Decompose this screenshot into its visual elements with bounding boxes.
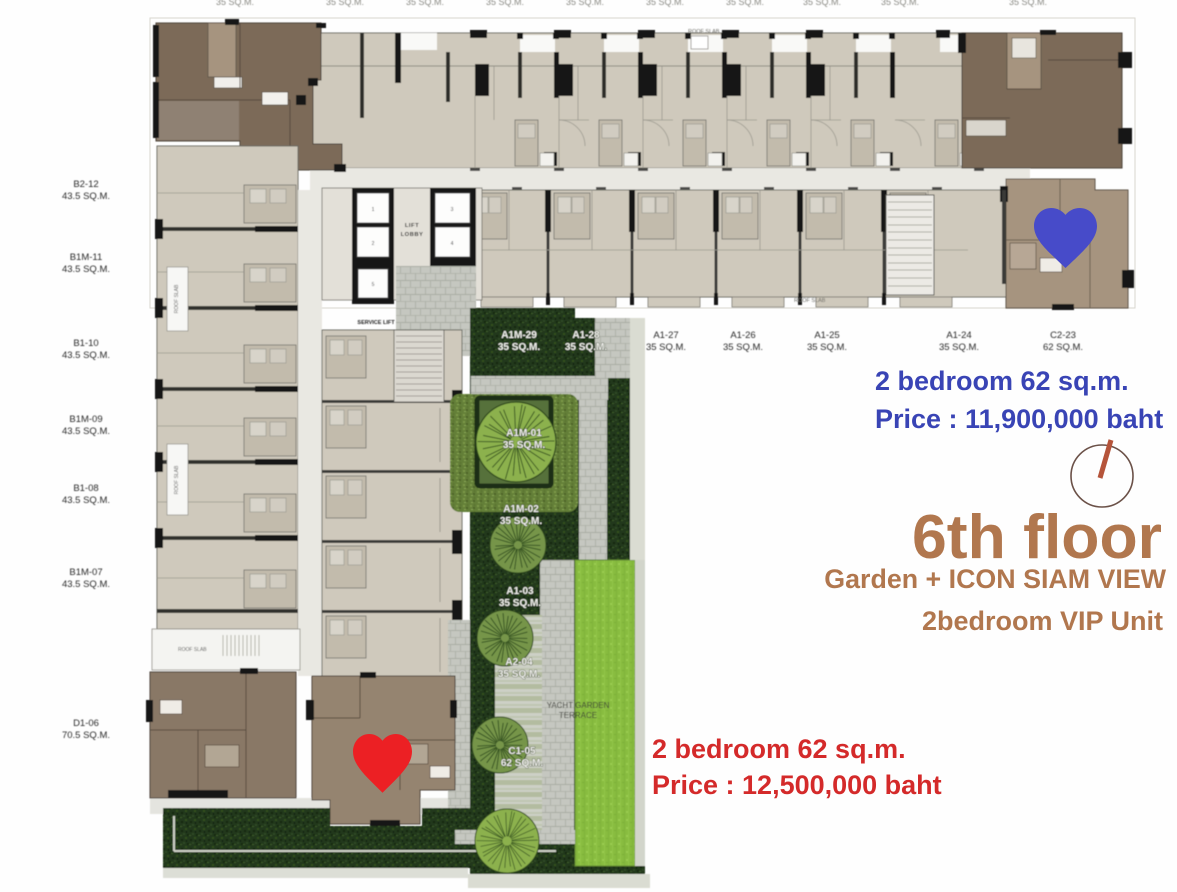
svg-text:35 SQ.M.: 35 SQ.M. [326, 0, 364, 7]
svg-text:35 SQ.M.: 35 SQ.M. [881, 0, 919, 7]
svg-text:D1-06: D1-06 [73, 718, 99, 729]
svg-text:Garden + ICON SIAM VIEW: Garden + ICON SIAM VIEW [824, 564, 1166, 594]
svg-text:35 SQ.M.: 35 SQ.M. [498, 342, 540, 353]
svg-text:35 SQ.M.: 35 SQ.M. [500, 516, 542, 527]
svg-text:35 SQ.M.: 35 SQ.M. [726, 0, 764, 7]
svg-text:A2-04: A2-04 [505, 657, 533, 668]
svg-text:B1-10: B1-10 [73, 338, 98, 349]
svg-text:B1M-09: B1M-09 [69, 414, 102, 425]
svg-text:2: 2 [372, 241, 375, 247]
svg-text:3: 3 [451, 207, 454, 213]
svg-text:35 SQ.M.: 35 SQ.M. [503, 440, 545, 451]
svg-text:A1-24: A1-24 [946, 330, 971, 341]
svg-text:35 SQ.M.: 35 SQ.M. [646, 0, 684, 7]
svg-text:LIFT: LIFT [405, 223, 419, 229]
svg-text:TERRACE: TERRACE [559, 711, 597, 720]
svg-text:2bedroom VIP Unit: 2bedroom VIP Unit [922, 606, 1163, 636]
svg-text:Price : 12,500,000 baht: Price : 12,500,000 baht [652, 770, 942, 800]
svg-text:43.5 SQ.M.: 43.5 SQ.M. [62, 579, 110, 590]
svg-text:35 SQ.M.: 35 SQ.M. [646, 342, 686, 353]
svg-text:43.5 SQ.M.: 43.5 SQ.M. [62, 191, 110, 202]
svg-text:35 SQ.M.: 35 SQ.M. [565, 342, 607, 353]
svg-text:62 SQ.M.: 62 SQ.M. [501, 758, 543, 769]
svg-text:70.5 SQ.M.: 70.5 SQ.M. [62, 730, 110, 741]
svg-text:4: 4 [451, 241, 454, 247]
svg-text:35 SQ.M.: 35 SQ.M. [499, 598, 541, 609]
svg-text:43.5 SQ.M.: 43.5 SQ.M. [62, 495, 110, 506]
svg-text:A1-28: A1-28 [572, 330, 600, 341]
svg-text:35 SQ.M.: 35 SQ.M. [723, 342, 763, 353]
svg-text:A1-26: A1-26 [730, 330, 755, 341]
svg-text:35 SQ.M.: 35 SQ.M. [498, 669, 540, 680]
svg-text:5: 5 [372, 282, 375, 288]
svg-text:ROOF SLAB: ROOF SLAB [174, 465, 180, 494]
svg-text:35 SQ.M.: 35 SQ.M. [803, 0, 841, 7]
svg-text:35 SQ.M.: 35 SQ.M. [939, 342, 979, 353]
svg-text:A1M-29: A1M-29 [501, 330, 537, 341]
svg-text:YACHT GARDEN: YACHT GARDEN [547, 701, 610, 710]
svg-text:35 SQ.M.: 35 SQ.M. [406, 0, 444, 7]
svg-text:35 SQ.M.: 35 SQ.M. [1009, 0, 1047, 7]
svg-text:43.5 SQ.M.: 43.5 SQ.M. [62, 350, 110, 361]
svg-text:35 SQ.M.: 35 SQ.M. [566, 0, 604, 7]
svg-text:SERVICE LIFT: SERVICE LIFT [357, 320, 395, 326]
svg-text:C2-23: C2-23 [1050, 330, 1076, 341]
svg-text:B1M-07: B1M-07 [69, 567, 102, 578]
svg-text:43.5 SQ.M.: 43.5 SQ.M. [62, 426, 110, 437]
svg-text:Price : 11,900,000 baht: Price : 11,900,000 baht [875, 404, 1163, 434]
svg-text:6th floor: 6th floor [912, 502, 1162, 572]
svg-text:ROOF SLAB: ROOF SLAB [178, 647, 207, 653]
svg-text:B1M-11: B1M-11 [70, 252, 103, 263]
svg-text:ROOF SLAB: ROOF SLAB [794, 298, 826, 304]
svg-text:A1M-01: A1M-01 [506, 428, 542, 439]
svg-text:ROOF SLAB: ROOF SLAB [688, 29, 720, 35]
svg-text:B2-12: B2-12 [73, 179, 98, 190]
svg-text:35 SQ.M.: 35 SQ.M. [486, 0, 524, 7]
svg-text:A1-27: A1-27 [653, 330, 678, 341]
svg-text:43.5 SQ.M.: 43.5 SQ.M. [62, 264, 110, 275]
svg-text:35 SQ.M.: 35 SQ.M. [216, 0, 254, 7]
svg-text:2 bedroom 62 sq.m.: 2 bedroom 62 sq.m. [875, 366, 1129, 396]
svg-text:A1-03: A1-03 [506, 586, 534, 597]
svg-text:A1-25: A1-25 [814, 330, 839, 341]
svg-text:C1-05: C1-05 [508, 746, 536, 757]
svg-text:62 SQ.M.: 62 SQ.M. [1043, 342, 1083, 353]
svg-text:B1-08: B1-08 [73, 483, 98, 494]
svg-text:35 SQ.M.: 35 SQ.M. [807, 342, 847, 353]
svg-text:2 bedroom 62 sq.m.: 2 bedroom 62 sq.m. [652, 734, 906, 764]
svg-text:ROOF SLAB: ROOF SLAB [174, 284, 180, 313]
svg-text:A1M-02: A1M-02 [503, 504, 539, 515]
svg-text:1: 1 [372, 207, 375, 213]
svg-text:LOBBY: LOBBY [401, 232, 424, 238]
